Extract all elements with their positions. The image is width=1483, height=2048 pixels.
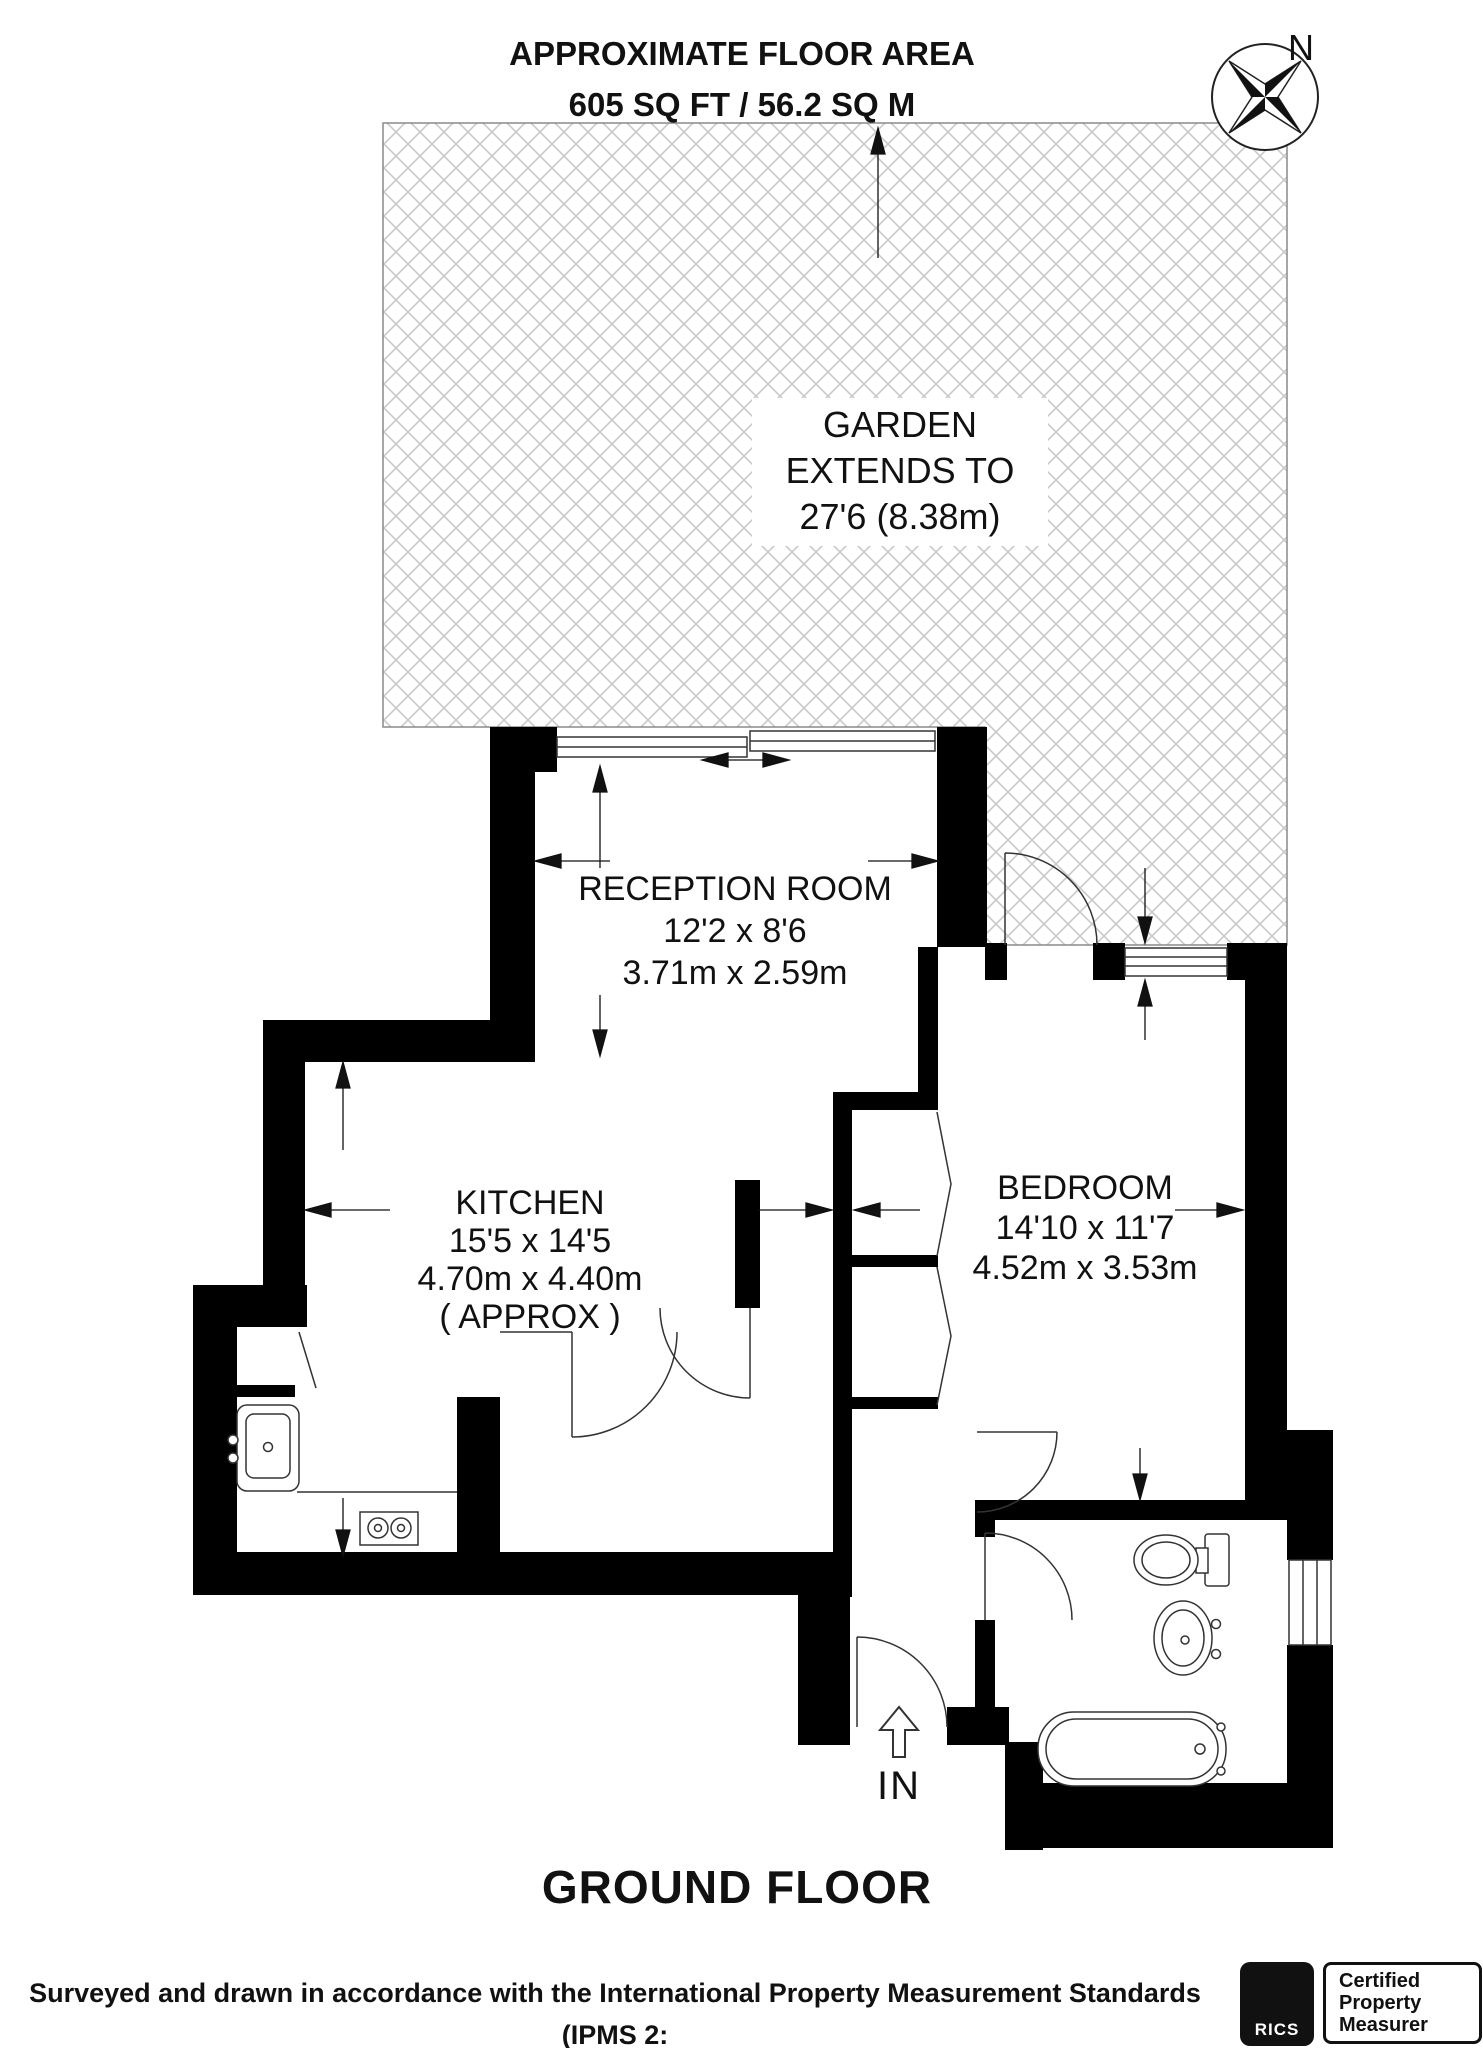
bedroom-metric: 4.52m x 3.53m (885, 1248, 1285, 1288)
reception-room-imperial: 12'2 x 8'6 (535, 910, 935, 952)
reception-right-arrow (868, 854, 938, 868)
rics-wordmark: RICS (1255, 2020, 1300, 2040)
bedroom-window (1125, 948, 1227, 976)
floorplan-page: APPROXIMATE FLOOR AREA 605 SQ FT / 56.2 … (0, 0, 1483, 2048)
bedroom-window-up-arrow (1138, 980, 1152, 1040)
bathtub-icon (1038, 1712, 1226, 1786)
page-title-block: APPROXIMATE FLOOR AREA 605 SQ FT / 56.2 … (442, 28, 1042, 130)
kitchen-note: ( APPROX ) (330, 1298, 730, 1336)
kitchen-name: KITCHEN (330, 1184, 730, 1222)
compass-north-label: N (1288, 26, 1348, 69)
kitchen-cupboard-door (299, 1332, 316, 1388)
kitchen-imperial: 15'5 x 14'5 (330, 1222, 730, 1260)
garden-label: GARDEN EXTENDS TO 27'6 (8.38m) (750, 402, 1050, 540)
garden-label-line1: GARDEN (750, 402, 1050, 448)
rics-badge: RICS (1240, 1962, 1314, 2046)
hall-door-left (572, 1332, 677, 1437)
kitchen-up-arrow (336, 1062, 350, 1150)
bathroom-door (985, 1533, 1072, 1620)
garden-label-line2: EXTENDS TO (750, 448, 1050, 494)
toilet-icon (1134, 1534, 1229, 1586)
bedroom-label: BEDROOM 14'10 x 11'7 4.52m x 3.53m (885, 1168, 1285, 1288)
floorplan-drawing (0, 0, 1483, 2048)
reception-room-name: RECEPTION ROOM (535, 868, 935, 910)
page-title: APPROXIMATE FLOOR AREA (442, 28, 1042, 79)
entrance-in-label: IN (849, 1762, 949, 1810)
reception-up-arrow (593, 766, 607, 868)
footer-line1: Surveyed and drawn in accordance with th… (0, 1972, 1230, 2048)
kitchen-down-arrow (336, 1498, 350, 1556)
bathroom-window (1289, 1560, 1331, 1645)
kitchen-sink-icon (228, 1405, 299, 1491)
reception-down-arrow (593, 995, 607, 1056)
bathroom-fixtures (1038, 1534, 1229, 1786)
stove-icon (360, 1512, 418, 1545)
cert-line1: Certified (1339, 1970, 1479, 1992)
footer-note: Surveyed and drawn in accordance with th… (0, 1972, 1230, 2048)
reception-room-metric: 3.71m x 2.59m (535, 952, 935, 994)
bedroom-imperial: 14'10 x 11'7 (885, 1208, 1285, 1248)
entrance-in-arrow-icon (880, 1707, 918, 1757)
basin-icon (1154, 1601, 1221, 1675)
page-subtitle: 605 SQ FT / 56.2 SQ M (442, 79, 1042, 130)
cert-line2: Property (1339, 1992, 1479, 2014)
reception-room-label: RECEPTION ROOM 12'2 x 8'6 3.71m x 2.59m (535, 868, 935, 994)
cert-line3: Measurer (1339, 2014, 1479, 2036)
kitchen-metric: 4.70m x 4.40m (330, 1260, 730, 1298)
floor-title: GROUND FLOOR (437, 1860, 1037, 1915)
garden-label-line3: 27'6 (8.38m) (750, 494, 1050, 540)
reception-sliding-window (557, 731, 935, 757)
bedroom-name: BEDROOM (885, 1168, 1285, 1208)
certified-property-measurer-badge: Certified Property Measurer (1323, 1962, 1482, 2044)
kitchen-label: KITCHEN 15'5 x 14'5 4.70m x 4.40m ( APPR… (330, 1184, 730, 1336)
bedroom-bottom-down-arrow (1133, 1448, 1147, 1500)
kitchen-right-arrow (758, 1203, 832, 1217)
reception-left-arrow (535, 854, 610, 868)
